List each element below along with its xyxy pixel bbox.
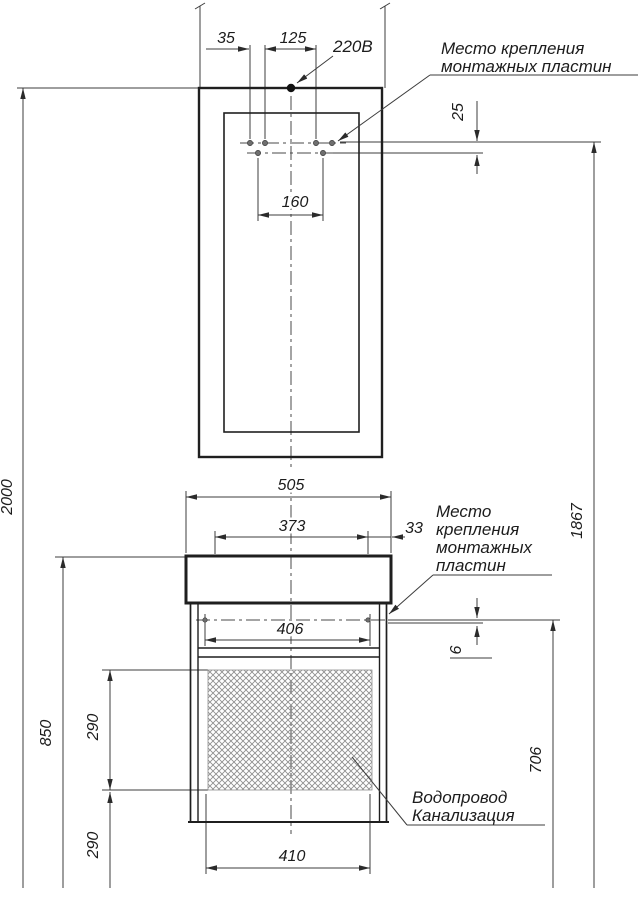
dim-6: 6 <box>448 645 465 654</box>
installation-drawing: 35 125 25 160 505 373 33 406 6 290 290 8… <box>0 0 642 900</box>
label-mounting-cabinet-line1: Место <box>436 502 491 521</box>
mounting-holes <box>203 84 370 622</box>
cabinet-outline <box>186 556 391 822</box>
dim-25: 25 <box>450 103 467 122</box>
dim-33: 33 <box>405 520 423 537</box>
dim-160: 160 <box>282 194 309 211</box>
label-power-220v: 220В <box>332 37 373 56</box>
dim-2000: 2000 <box>0 479 16 516</box>
label-plumbing-line1: Водопровод <box>412 788 507 807</box>
dim-406: 406 <box>277 621 304 638</box>
technical-drawing-page: 35 125 25 160 505 373 33 406 6 290 290 8… <box>0 0 642 900</box>
label-plumbing-line2: Канализация <box>412 806 515 825</box>
dim-125: 125 <box>280 30 307 47</box>
dim-373: 373 <box>279 518 306 535</box>
countertop <box>186 556 391 603</box>
dim-290-lower: 290 <box>85 832 102 860</box>
dim-850: 850 <box>38 720 55 747</box>
dim-505: 505 <box>278 477 305 494</box>
dim-706: 706 <box>528 747 545 774</box>
dim-35: 35 <box>217 30 235 47</box>
dim-410: 410 <box>279 848 306 865</box>
plumbing-zone-hatch <box>208 670 372 790</box>
label-mounting-cabinet-line2: крепления <box>436 520 519 539</box>
label-mounting-top-line1: Место крепления <box>441 39 584 58</box>
dim-290-upper: 290 <box>85 714 102 742</box>
label-mounting-top-line2: монтажных пластин <box>441 57 612 76</box>
annotation-texts: 220В Место крепления монтажных пластин М… <box>332 37 612 825</box>
label-mounting-cabinet-line3: монтажных <box>436 538 532 557</box>
label-mounting-cabinet-line4: пластин <box>436 556 507 575</box>
power-socket-point <box>287 84 295 92</box>
dim-1867: 1867 <box>569 502 586 539</box>
